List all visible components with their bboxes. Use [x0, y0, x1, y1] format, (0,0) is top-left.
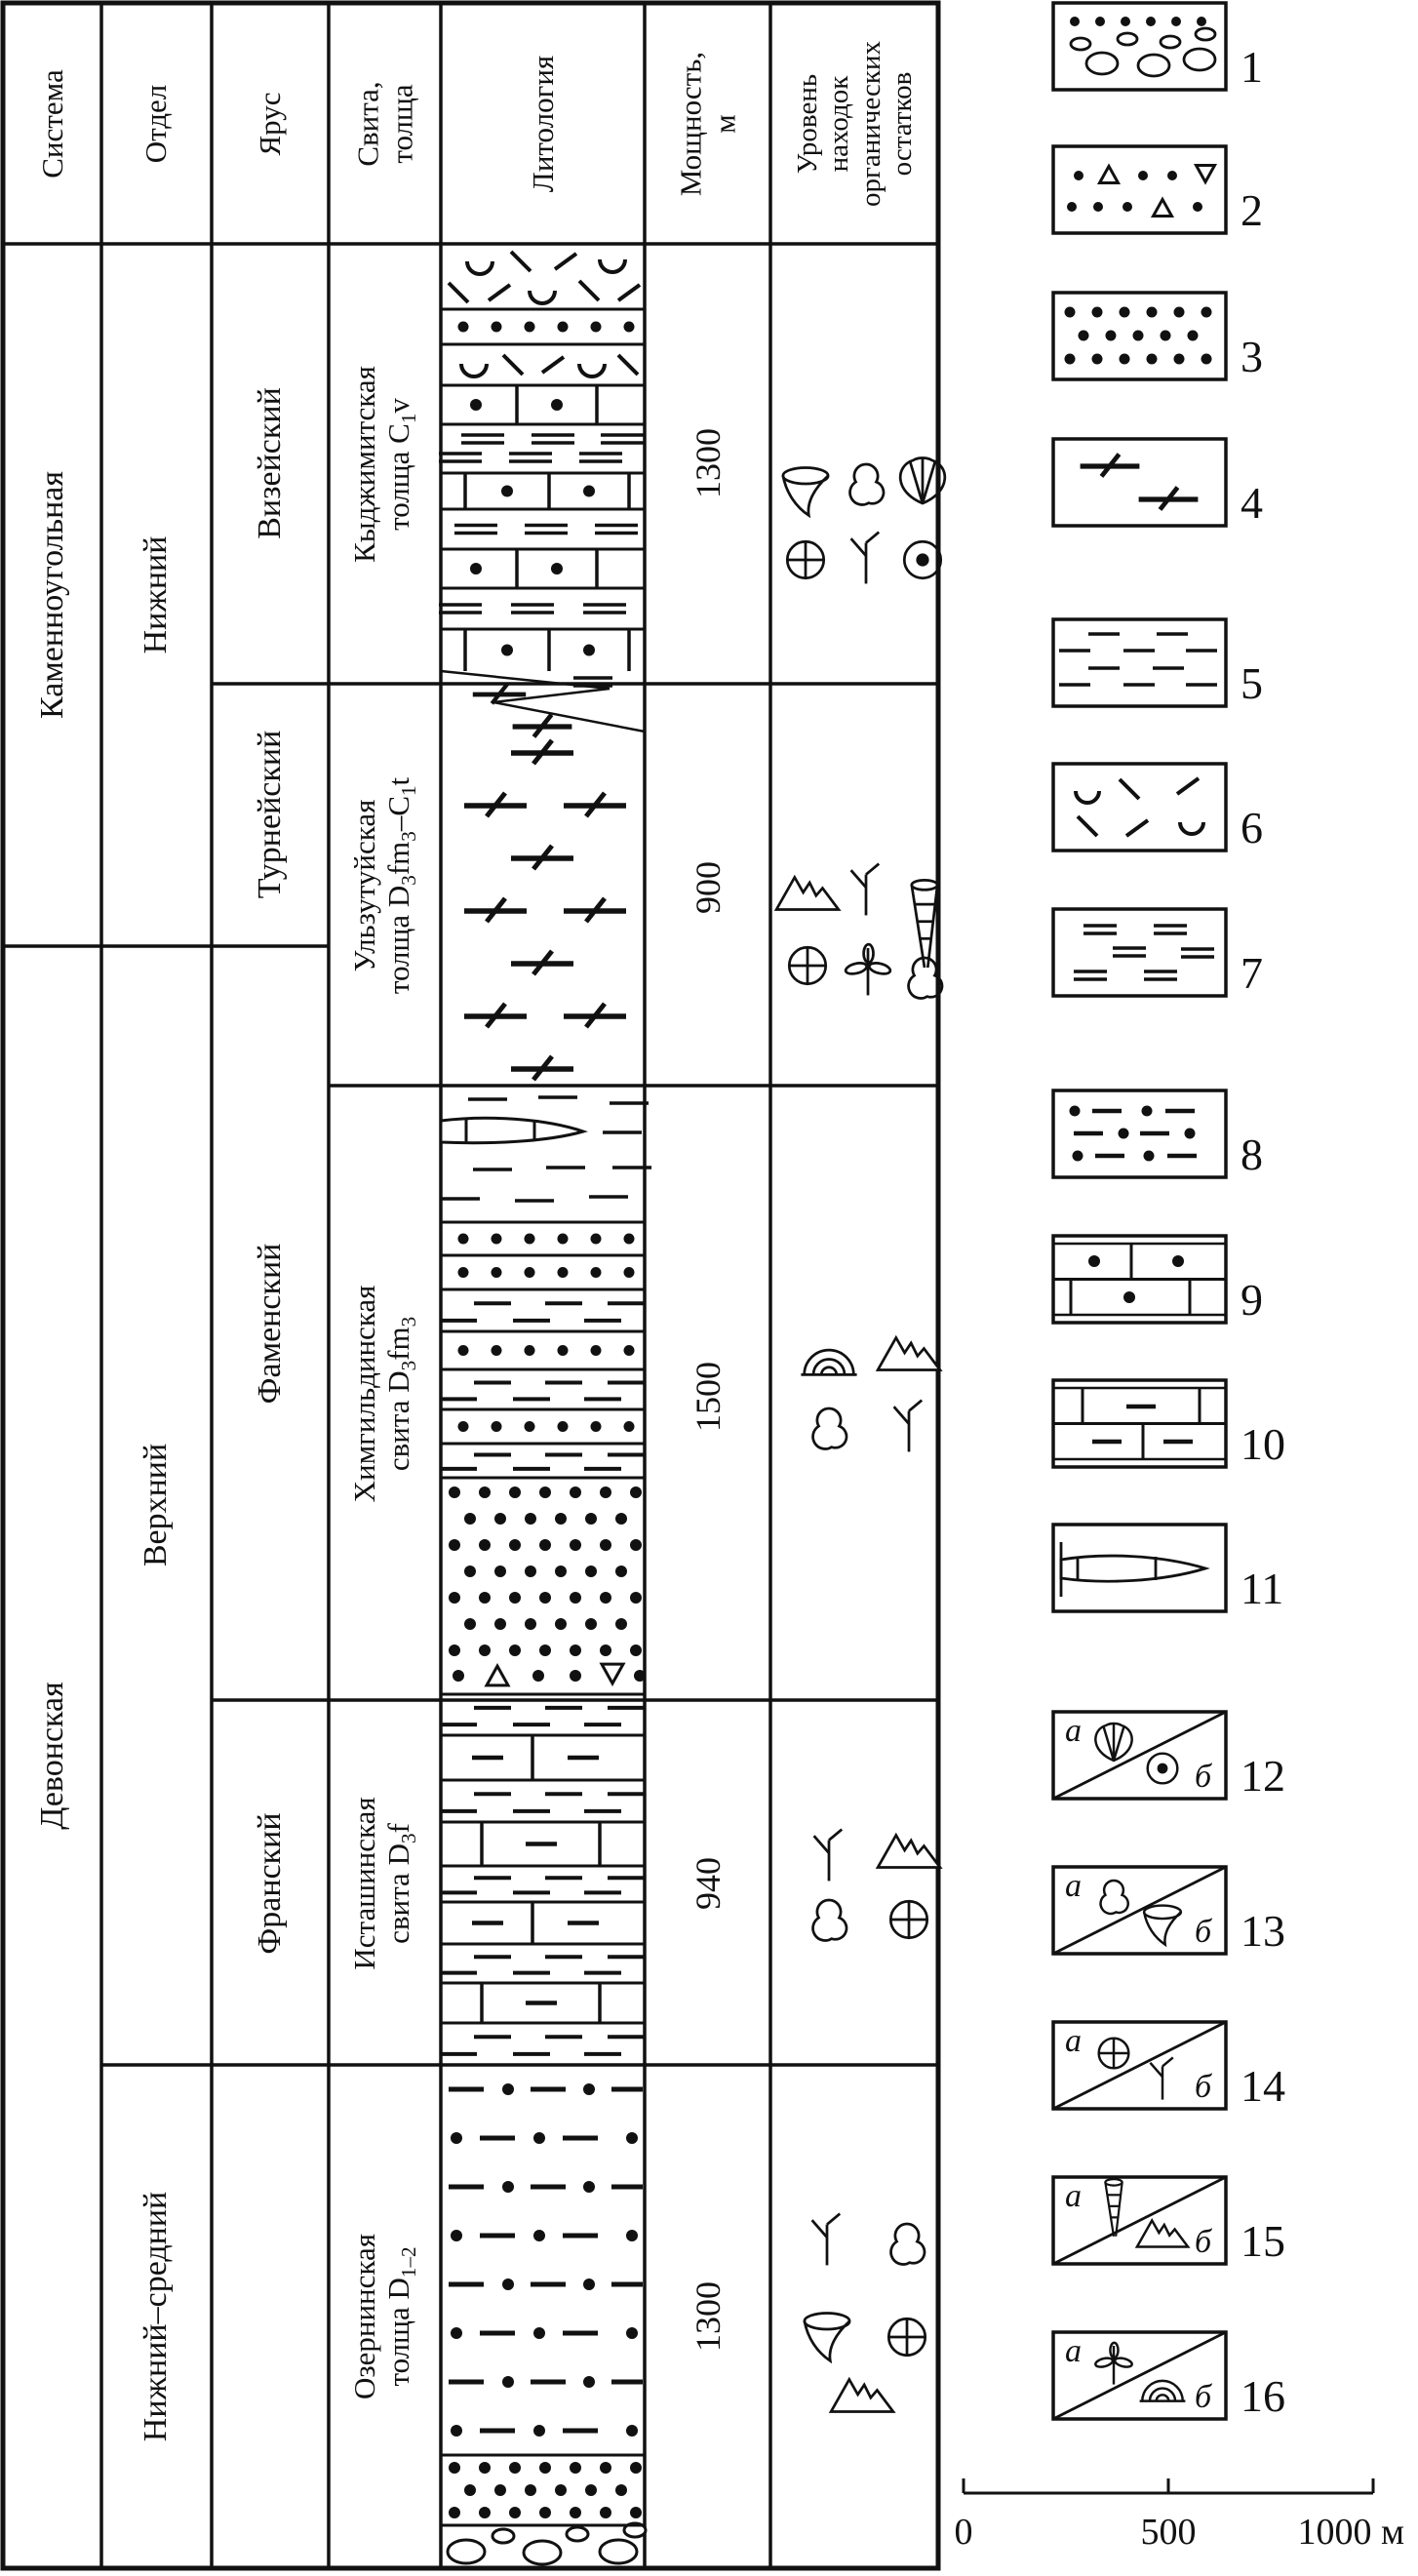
fossil-level-row	[783, 458, 945, 584]
legend-number: 8	[1241, 1129, 1263, 1179]
legend-a-label: а	[1065, 2023, 1082, 2059]
lithology-band-dashScat	[440, 1455, 645, 1469]
lithology-band-volc2	[449, 252, 640, 303]
legend-number: 14	[1241, 2061, 1285, 2111]
header-stage: Ярус	[253, 92, 288, 155]
legend-b-label: б	[1195, 2224, 1213, 2260]
arch-fossil-icon	[1140, 2381, 1186, 2401]
lithology-band-dotsRow	[458, 1345, 635, 1356]
lithology-band-dashLens	[441, 1097, 651, 1201]
lithology-band-brickDashB	[482, 1983, 600, 2023]
scale-label: 1000 м	[1297, 2512, 1404, 2553]
legend-number: 16	[1241, 2371, 1285, 2421]
lithology-band-dash2x2	[439, 435, 644, 461]
lithology-band-dash2x1	[454, 526, 638, 534]
legend-number: 2	[1241, 185, 1263, 235]
fossil-level-row	[805, 2214, 926, 2412]
formation-istashinskaya: Исташинская свита D3f	[348, 1797, 421, 1969]
legend-item-9: 9	[1053, 1236, 1263, 1325]
header-fossil-line4: остатков	[886, 41, 918, 207]
legend-number: 7	[1241, 948, 1263, 998]
legend-item-14: 14аб	[1053, 2022, 1285, 2111]
legend-b-label: б	[1195, 1759, 1213, 1795]
formation-name: Химгильдинская	[348, 1286, 382, 1503]
trefoil-fossil-icon	[813, 1408, 847, 1449]
trefoil-fossil-icon	[891, 2224, 925, 2265]
header-formation-line2: толща	[385, 81, 419, 166]
legend-number: 12	[1241, 1751, 1285, 1801]
lithology-band-dotsTri	[449, 1486, 646, 1685]
thickness-value: 1300	[688, 428, 729, 498]
legend-item-2: 2	[1053, 146, 1263, 235]
mountain-fossil-icon	[831, 2380, 893, 2412]
lithology-band-dotsRow	[458, 322, 635, 333]
lithology-band-crossField	[441, 671, 645, 1080]
twig-fossil-icon	[814, 1830, 843, 1882]
lithology-band-brickDashA	[472, 1902, 599, 1944]
header-fossil-levels: Уровень находок органических остатков	[792, 41, 919, 207]
thickness-value: 1500	[688, 1362, 729, 1432]
legend-a-label: а	[1065, 1868, 1082, 1904]
mountain-fossil-icon	[776, 878, 839, 910]
formation-ulzutuyskaya: Ульзутуйская толща D3fm3–C1t	[348, 777, 421, 994]
formation-name: Озернинская	[348, 2234, 382, 2399]
legend-number: 13	[1241, 1906, 1285, 1956]
fossil-level-row	[813, 1830, 940, 1941]
fossil-level-row	[776, 864, 942, 999]
crossCircle-fossil-icon	[789, 947, 825, 983]
diagram-svg: 123456789101112аб13аб14аб15аб16аб0500100…	[0, 0, 1418, 2576]
lithology-band-brickDashA	[472, 1735, 599, 1780]
header-fossil-line2: находок	[824, 41, 855, 207]
formation-unit: свита D3f	[381, 1797, 420, 1969]
legend-item-4: 4	[1053, 439, 1263, 528]
formation-name: Ульзутуйская	[348, 777, 382, 994]
header-division: Отдел	[138, 85, 174, 164]
division-upper: Верхний	[138, 1444, 175, 1566]
crossCircle-fossil-icon	[787, 541, 823, 577]
lithology-band-dashScat	[440, 1957, 645, 1972]
lithology-band-dotDash	[449, 2083, 643, 2437]
header-system: Система	[35, 69, 70, 178]
legend-b-label: б	[1195, 1914, 1213, 1950]
legend: 123456789101112аб13аб14аб15аб16аб	[1053, 3, 1285, 2421]
mountain-fossil-icon	[1137, 2221, 1188, 2247]
division-lower-middle: Нижний–средний	[138, 2192, 175, 2441]
header-thickness-line1: Мощность,	[674, 52, 708, 196]
legend-number: 9	[1241, 1275, 1263, 1325]
fan-fossil-icon	[1095, 1724, 1131, 1761]
table-grid	[3, 3, 938, 2568]
legend-b-label: б	[1195, 2379, 1213, 2415]
lithology-band-dashScat	[440, 1708, 645, 1724]
lithology-band-brickDotsA	[470, 549, 597, 588]
stage-tournaisian: Турнейский	[252, 731, 289, 899]
twig-fossil-icon	[851, 864, 880, 916]
fossil-levels-column	[776, 458, 945, 2412]
lithology-band-brickDotsA	[470, 385, 597, 424]
legend-number: 15	[1241, 2216, 1285, 2266]
header-formation-line1: Свита,	[351, 81, 385, 166]
stage-frasnian: Франский	[252, 1812, 289, 1954]
legend-item-15: 15аб	[1053, 2177, 1285, 2266]
fossil-level-row	[801, 1338, 940, 1452]
lithology-band-brickDashB	[482, 1822, 600, 1866]
legend-number: 10	[1241, 1419, 1285, 1469]
header-formation: Свита, толща	[351, 81, 418, 166]
crossCircle-fossil-icon	[890, 1901, 926, 1937]
flower-fossil-icon	[1094, 2343, 1132, 2385]
legend-item-8: 8	[1053, 1090, 1263, 1179]
legend-item-11: 11	[1053, 1525, 1283, 1613]
legend-number: 1	[1241, 42, 1263, 92]
header-fossil-line3: органических	[855, 41, 886, 207]
formation-unit: толща D1–2	[381, 2234, 420, 2399]
stage-famennian: Фаменский	[252, 1244, 289, 1405]
crossCircle-fossil-icon	[888, 2318, 925, 2355]
trefoil-fossil-icon	[813, 1900, 847, 1941]
legend-number: 11	[1241, 1564, 1283, 1613]
legend-item-5: 5	[1053, 619, 1263, 708]
dotCircle-fossil-icon	[904, 541, 940, 577]
legend-number: 4	[1241, 478, 1263, 528]
header-lithology: Литология	[526, 56, 561, 192]
system-carboniferous: Каменноугольная	[34, 471, 71, 719]
lithology-band-dashScat	[440, 1303, 645, 1321]
twig-fossil-icon	[1150, 2057, 1172, 2099]
scale-label: 500	[1141, 2512, 1197, 2553]
formation-unit: свита D3fm3	[381, 1286, 420, 1503]
twig-fossil-icon	[894, 1401, 923, 1452]
scale-bar: 05001000 м	[955, 2478, 1405, 2553]
narrowCone-fossil-icon	[1105, 2179, 1122, 2237]
lithology-band-brickDotsB	[465, 473, 629, 509]
formation-ozerninskaya: Озернинская толща D1–2	[348, 2234, 421, 2399]
crossCircle-fossil-icon	[1099, 2039, 1129, 2069]
legend-item-12: 12аб	[1053, 1712, 1285, 1801]
lithology-band-dotsField	[449, 2462, 642, 2518]
legend-number: 5	[1241, 658, 1263, 708]
lithology-band-dashScat	[440, 2037, 645, 2054]
legend-item-1: 1	[1053, 3, 1263, 92]
thickness-value: 1300	[688, 2281, 729, 2352]
header-fossil-line1: Уровень	[792, 41, 823, 207]
header-thickness: Мощность, м	[674, 52, 741, 196]
cone-fossil-icon	[805, 2313, 849, 2360]
legend-item-13: 13аб	[1053, 1867, 1285, 1956]
trefoil-fossil-icon	[850, 464, 884, 505]
legend-item-10: 10	[1053, 1380, 1285, 1469]
lithology-band-volc1	[461, 355, 638, 376]
legend-item-7: 7	[1053, 909, 1263, 998]
formation-name: Исташинская	[348, 1797, 382, 1969]
legend-item-16: 16аб	[1053, 2332, 1285, 2421]
legend-a-label: а	[1065, 2333, 1082, 2369]
lithology-band-brickDotsB	[465, 629, 629, 671]
narrowCone-fossil-icon	[912, 880, 937, 968]
formation-khimgildinskaya: Химгильдинская свита D3fm3	[348, 1286, 421, 1503]
flower-fossil-icon	[845, 944, 891, 995]
division-lower: Нижний	[138, 536, 175, 654]
system-devonian: Девонская	[34, 1682, 71, 1830]
formation-unit: толща C1v	[381, 366, 420, 563]
lithology-band-dashScat	[440, 1383, 645, 1400]
mountain-fossil-icon	[878, 1836, 940, 1868]
cone-fossil-icon	[783, 467, 828, 515]
cone-fossil-icon	[1144, 1906, 1181, 1945]
legend-a-label: а	[1065, 1713, 1082, 1749]
lithology-band-dash2x1b	[439, 605, 626, 613]
header-thickness-line2: м	[708, 52, 742, 196]
legend-item-3: 3	[1053, 293, 1263, 381]
legend-item-6: 6	[1053, 764, 1263, 852]
lithology-column	[439, 252, 651, 2564]
thickness-value: 900	[688, 861, 729, 914]
lithology-band-dashScat	[440, 1878, 645, 1892]
arch-fossil-icon	[801, 1350, 856, 1374]
lithology-band-dotsRow	[458, 1421, 635, 1432]
lithology-band-conglo	[448, 2523, 646, 2564]
stratigraphic-column-figure: 123456789101112аб13аб14аб15аб16аб0500100…	[0, 0, 1418, 2576]
legend-b-label: б	[1195, 2069, 1213, 2105]
lithology-band-dotsRow	[458, 1267, 635, 1278]
twig-fossil-icon	[851, 533, 880, 584]
dotCircle-fossil-icon	[1148, 1754, 1178, 1784]
legend-number: 6	[1241, 803, 1263, 852]
lithology-band-dashScat	[440, 1794, 645, 1811]
stage-visean: Визейский	[252, 387, 289, 539]
formation-unit: толща D3fm3–C1t	[381, 777, 420, 994]
lithology-band-dotsRow	[458, 1234, 635, 1245]
legend-a-label: а	[1065, 2178, 1082, 2214]
thickness-value: 940	[688, 1857, 729, 1910]
twig-fossil-icon	[812, 2214, 841, 2266]
formation-kydzhimitskaya: Кыджимитская толща C1v	[348, 366, 421, 563]
scale-label: 0	[955, 2512, 973, 2553]
trefoil-fossil-icon	[1101, 1881, 1128, 1914]
mountain-fossil-icon	[878, 1338, 940, 1370]
legend-number: 3	[1241, 332, 1263, 381]
formation-name: Кыджимитская	[348, 366, 382, 563]
